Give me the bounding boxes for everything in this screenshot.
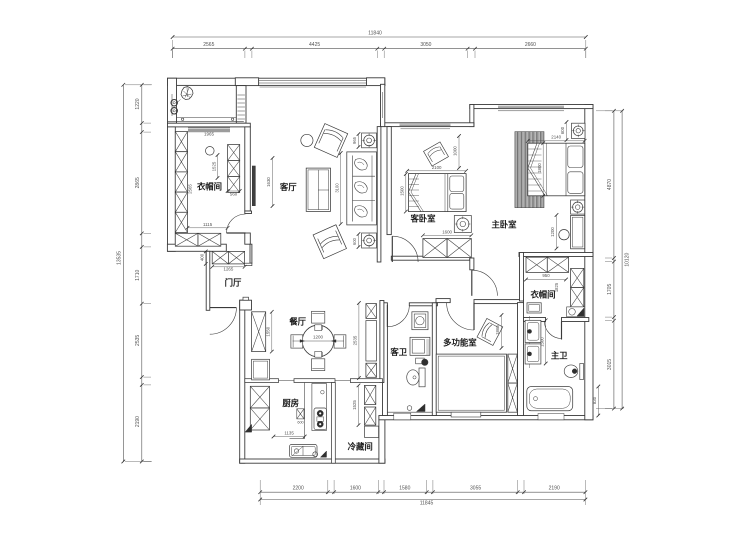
- svg-text:4870: 4870: [607, 179, 613, 190]
- svg-text:400: 400: [200, 253, 205, 261]
- svg-text:11840: 11840: [368, 31, 382, 37]
- svg-text:560: 560: [230, 192, 238, 197]
- svg-text:1135: 1135: [284, 430, 294, 435]
- svg-text:2200: 2200: [293, 486, 304, 492]
- svg-text:600: 600: [352, 237, 357, 245]
- svg-text:965: 965: [352, 136, 357, 144]
- svg-text:1630: 1630: [266, 177, 271, 187]
- svg-text:1600: 1600: [350, 486, 361, 492]
- svg-text:2100: 2100: [432, 165, 442, 170]
- svg-text:客卫: 客卫: [389, 347, 407, 357]
- svg-text:3015: 3015: [607, 359, 613, 370]
- svg-text:餐厅: 餐厅: [288, 317, 306, 327]
- svg-text:3050: 3050: [420, 42, 431, 48]
- svg-text:门厅: 门厅: [225, 278, 242, 288]
- svg-text:冷藏间: 冷藏间: [348, 442, 373, 452]
- svg-text:600: 600: [560, 126, 565, 134]
- svg-text:1580: 1580: [399, 486, 410, 492]
- svg-text:1865: 1865: [495, 325, 500, 335]
- svg-text:1220: 1220: [135, 98, 141, 109]
- svg-text:2660: 2660: [525, 42, 536, 48]
- svg-text:1265: 1265: [224, 267, 234, 272]
- svg-text:600: 600: [297, 421, 303, 425]
- svg-text:厨房: 厨房: [282, 398, 299, 408]
- svg-text:2190: 2190: [549, 486, 560, 492]
- svg-text:客卧室: 客卧室: [409, 214, 436, 224]
- svg-text:2565: 2565: [203, 42, 214, 48]
- svg-text:830: 830: [592, 396, 597, 404]
- svg-text:1710: 1710: [135, 270, 141, 281]
- svg-text:3100: 3100: [334, 183, 339, 193]
- svg-text:2865: 2865: [135, 177, 141, 188]
- svg-text:2535: 2535: [135, 335, 141, 346]
- svg-text:1500: 1500: [539, 337, 544, 347]
- svg-text:1705: 1705: [607, 284, 613, 295]
- svg-text:主卫: 主卫: [551, 351, 568, 361]
- svg-text:2565: 2565: [188, 184, 193, 194]
- svg-text:1500: 1500: [399, 186, 404, 196]
- svg-text:1525: 1525: [352, 400, 357, 410]
- svg-text:1550: 1550: [266, 326, 271, 336]
- svg-text:1800: 1800: [537, 163, 542, 173]
- svg-text:客厅: 客厅: [279, 182, 297, 192]
- svg-text:13535: 13535: [117, 251, 123, 265]
- svg-text:10120: 10120: [625, 253, 631, 267]
- svg-text:2535: 2535: [353, 335, 358, 345]
- svg-text:多功能室: 多功能室: [443, 338, 477, 348]
- svg-text:1200: 1200: [313, 335, 324, 340]
- svg-text:2190: 2190: [135, 416, 141, 427]
- svg-text:主卧室: 主卧室: [491, 219, 517, 229]
- svg-text:1200: 1200: [550, 227, 555, 237]
- svg-text:1600: 1600: [442, 229, 452, 234]
- svg-text:1965: 1965: [204, 131, 215, 136]
- svg-text:950: 950: [542, 273, 550, 278]
- svg-text:11845: 11845: [420, 501, 434, 507]
- svg-text:1115: 1115: [203, 222, 213, 227]
- svg-text:4425: 4425: [309, 42, 320, 48]
- svg-text:1000: 1000: [453, 146, 458, 156]
- svg-text:3055: 3055: [470, 486, 481, 492]
- svg-text:衣帽间: 衣帽间: [530, 289, 555, 299]
- svg-text:衣帽间: 衣帽间: [197, 182, 222, 192]
- svg-text:1525: 1525: [211, 161, 216, 171]
